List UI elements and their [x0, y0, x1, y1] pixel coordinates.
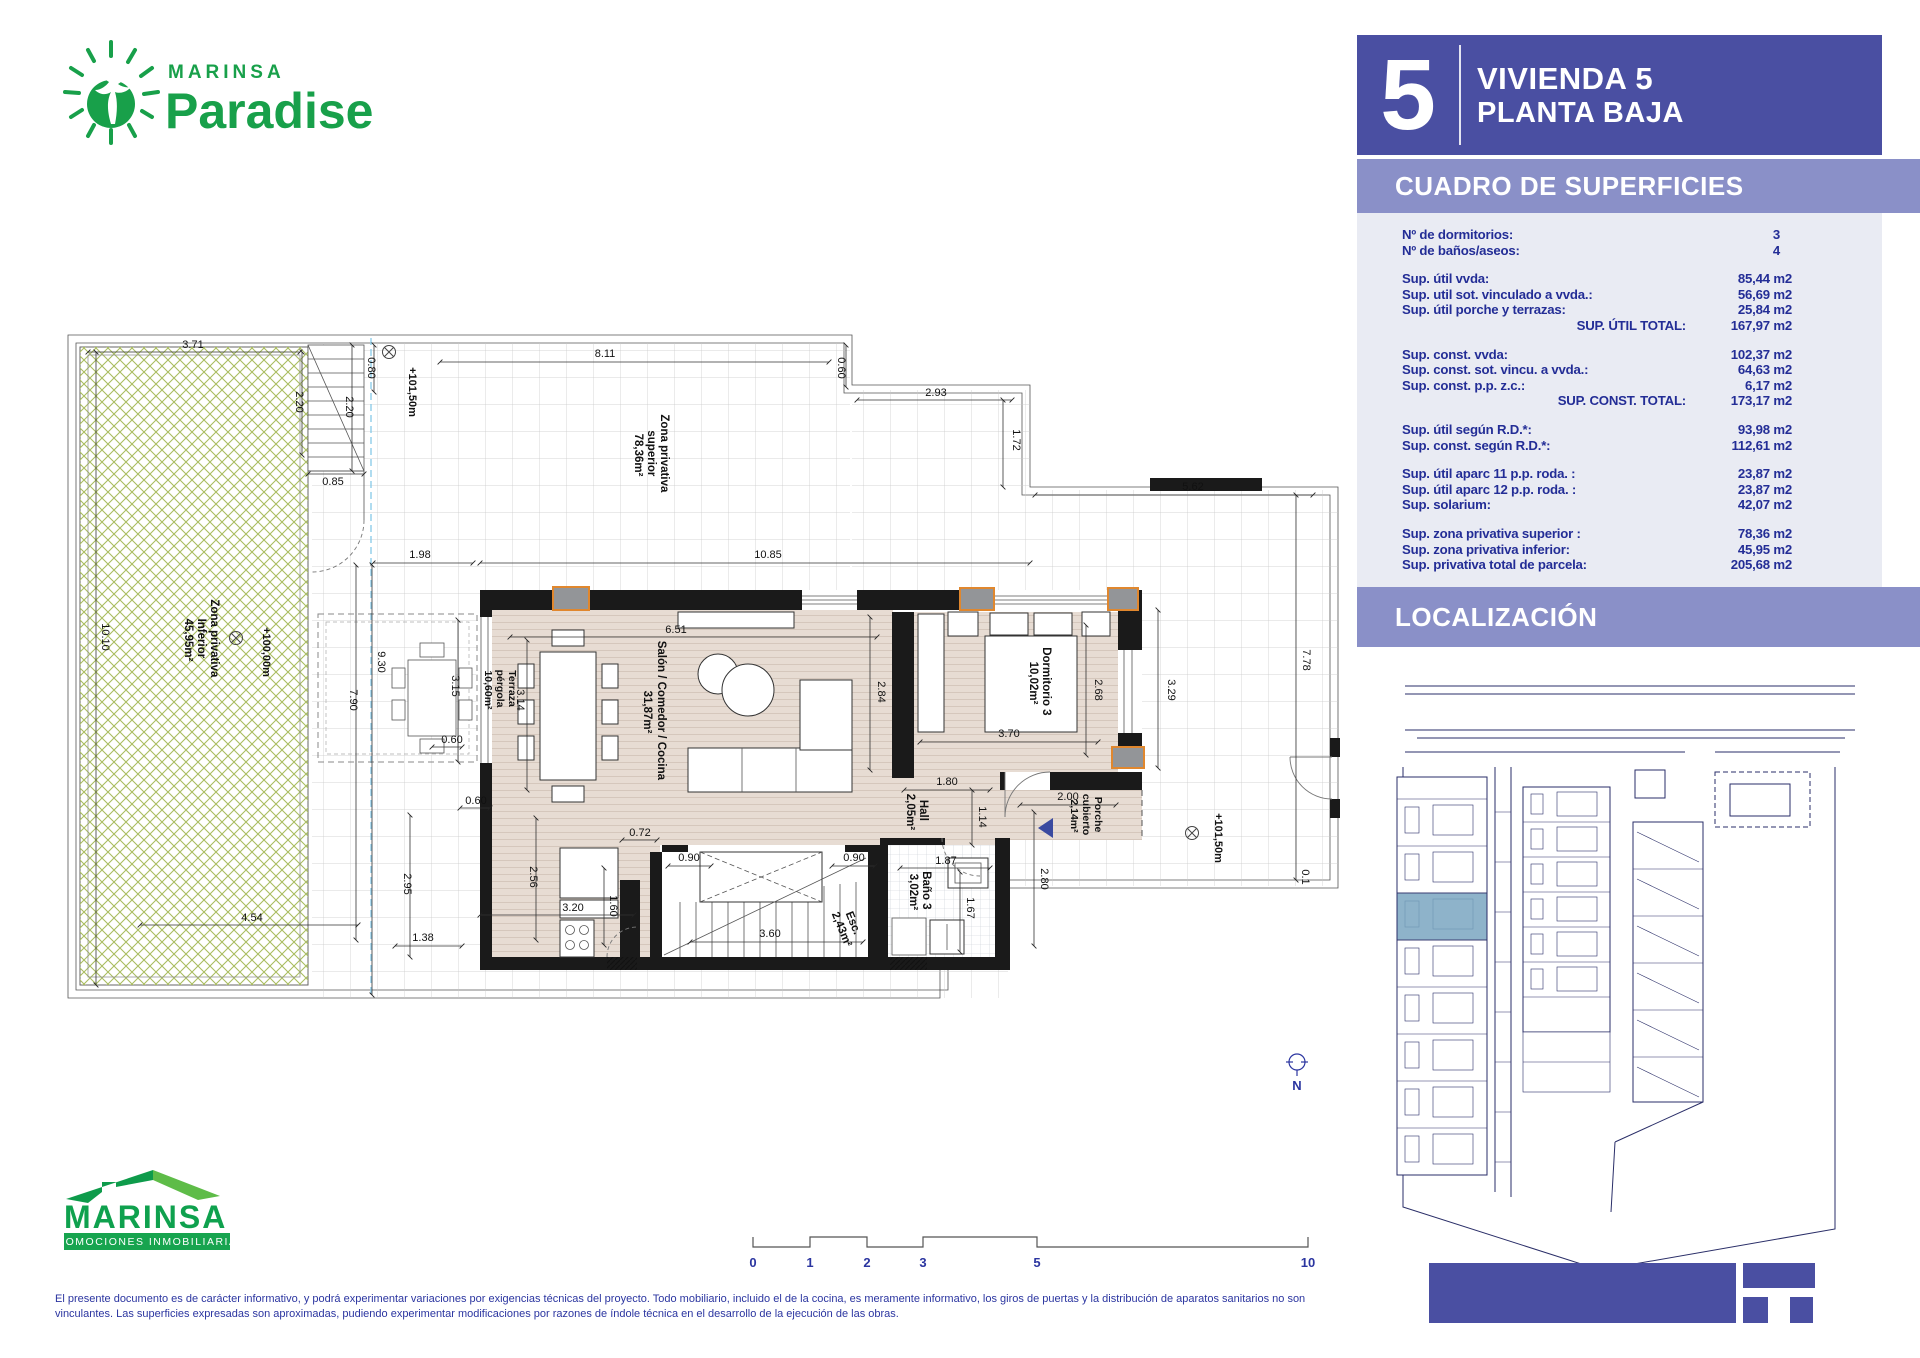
footer-tagline-text: PROMOCIONES INMOBILIARIAS [58, 1236, 246, 1248]
disclaimer-text: El presente documento es de carácter inf… [55, 1292, 1323, 1321]
svg-text:1.80: 1.80 [936, 776, 957, 788]
svg-text:3.20: 3.20 [562, 902, 583, 914]
table-row: Sup. zona privativa superior :78,36 m2 [1402, 526, 1792, 542]
svg-text:+100,00m: +100,00m [260, 627, 272, 677]
marinsa-footer-logo: MARINSA PROMOCIONES INMOBILIARIAS [58, 1166, 258, 1263]
highlighted-unit [1397, 893, 1487, 940]
svg-text:0.60: 0.60 [835, 357, 847, 378]
svg-text:Terraza pérgola: Terraza pérgola 10,60m² [482, 670, 518, 711]
svg-text:1.14: 1.14 [976, 806, 988, 827]
svg-text:0.60: 0.60 [465, 795, 486, 807]
unit-header: 5 VIVIENDA 5 PLANTA BAJA [1357, 35, 1882, 155]
svg-text:7.78: 7.78 [1300, 649, 1312, 670]
table-row: Sup. const. vvda:102,37 m2 [1402, 347, 1792, 363]
svg-text:2.56: 2.56 [527, 866, 539, 887]
svg-text:10.85: 10.85 [754, 549, 782, 561]
svg-text:6.51: 6.51 [665, 624, 686, 636]
map-left-column [1397, 777, 1487, 1175]
surfaces-header: CUADRO DE SUPERFICIES [1357, 159, 1920, 213]
svg-text:3.71: 3.71 [182, 339, 203, 351]
table-row: Sup. útil porche y terrazas:25,84 m2 [1402, 302, 1792, 318]
svg-text:8.11: 8.11 [595, 348, 616, 360]
svg-text:Baño 3 3,02m²: Baño 3 3,02m² [907, 871, 932, 913]
svg-text:0.85: 0.85 [322, 476, 343, 488]
svg-text:0.1: 0.1 [1299, 869, 1311, 884]
svg-text:2.68: 2.68 [1092, 679, 1104, 700]
svg-text:2.20: 2.20 [293, 391, 305, 412]
map-far-right [1611, 770, 1810, 1212]
svg-text:0.90: 0.90 [843, 852, 864, 864]
unit-title: VIVIENDA 5 [1477, 61, 1684, 97]
svg-text:1: 1 [806, 1255, 813, 1270]
brand-text: MARINSA [168, 62, 285, 83]
svg-text:1.98: 1.98 [409, 549, 430, 561]
location-header: LOCALIZACIÓN [1357, 587, 1920, 647]
table-row: Sup. privativa total de parcela:205,68 m… [1402, 557, 1792, 573]
svg-text:9.30: 9.30 [375, 651, 387, 672]
location-map [1385, 672, 1875, 1272]
svg-text:0: 0 [749, 1255, 756, 1270]
svg-text:2.93: 2.93 [925, 387, 946, 399]
surfaces-header-label: CUADRO DE SUPERFICIES [1395, 171, 1744, 202]
table-row: Nº de dormitorios:3 [1402, 227, 1792, 243]
plan-sheet: 3.71 2.20 0.80 2.20 0.85 8.11 0.60 2.93 … [0, 0, 1920, 1358]
svg-text:1.60: 1.60 [607, 895, 619, 916]
svg-text:10: 10 [1301, 1255, 1315, 1270]
product-text: Paradise [165, 83, 373, 139]
garden-zone [80, 347, 308, 985]
svg-text:1.87: 1.87 [935, 855, 956, 867]
scale-bar: 0 1 2 3 5 10 [749, 1237, 1315, 1270]
svg-text:0.90: 0.90 [678, 852, 699, 864]
svg-text:3.15: 3.15 [449, 675, 461, 696]
map-right-column [1523, 787, 1610, 1092]
map-lane [1495, 767, 1511, 1197]
table-row: Nº de baños/aseos:4 [1402, 243, 1792, 259]
footer-logo-block [1743, 1297, 1768, 1323]
svg-text:1.38: 1.38 [412, 932, 433, 944]
svg-text:+101,50m: +101,50m [406, 367, 418, 417]
svg-text:3.70: 3.70 [998, 728, 1019, 740]
footer-band [1429, 1263, 1736, 1323]
svg-text:5: 5 [1033, 1255, 1040, 1270]
svg-text:N: N [1292, 1078, 1301, 1093]
footer-logo-block [1790, 1297, 1813, 1323]
sun-palm-icon [65, 42, 158, 143]
svg-text:5.62: 5.62 [1182, 481, 1203, 493]
unit-number: 5 [1357, 40, 1459, 150]
north-icon: N [1286, 1054, 1308, 1093]
svg-text:3.29: 3.29 [1165, 679, 1177, 700]
svg-text:2.20: 2.20 [343, 396, 355, 417]
footer-brand-text: MARINSA [64, 1199, 227, 1235]
tv-bench [678, 612, 794, 628]
surfaces-table: Nº de dormitorios:3 Nº de baños/aseos:4 … [1357, 213, 1882, 587]
svg-text:1.67: 1.67 [964, 897, 976, 918]
svg-text:0.80: 0.80 [365, 357, 377, 378]
svg-text:2.84: 2.84 [875, 681, 887, 702]
table-total-row: SUP. ÚTIL TOTAL:167,97 m2 [1402, 318, 1792, 334]
table-row: Sup. util sot. vinculado a vvda.:56,69 m… [1402, 287, 1792, 303]
table-row: Sup. zona privativa inferior:45,95 m2 [1402, 542, 1792, 558]
table-row: Sup. const. según R.D.*:112,61 m2 [1402, 438, 1792, 454]
table-row: Sup. útil aparc 12 p.p. roda. :23,87 m2 [1402, 482, 1792, 498]
svg-text:Porche cubierto: Porche cubierto 2,14m² [1068, 794, 1104, 838]
svg-text:10.10: 10.10 [99, 623, 111, 651]
svg-text:7.90: 7.90 [347, 689, 359, 710]
marinsa-paradise-logo: MARINSA Paradise [55, 28, 385, 158]
table-total-row: SUP. CONST. TOTAL:173,17 m2 [1402, 393, 1792, 409]
svg-text:0.60: 0.60 [441, 734, 462, 746]
svg-text:+101,50m: +101,50m [1212, 813, 1224, 863]
table-row: Sup. const. sot. vincu. a vvda.:64,63 m2 [1402, 362, 1792, 378]
table-row: Sup. útil vvda:85,44 m2 [1402, 271, 1792, 287]
table-row: Sup. const. p.p. z.c.:6,17 m2 [1402, 378, 1792, 394]
table-row: Sup. útil aparc 11 p.p. roda. :23,87 m2 [1402, 466, 1792, 482]
table-row: Sup. solarium:42,07 m2 [1402, 497, 1792, 513]
svg-text:2: 2 [863, 1255, 870, 1270]
svg-text:1.72: 1.72 [1010, 429, 1022, 450]
svg-text:2.80: 2.80 [1038, 868, 1050, 889]
table-row: Sup. útil según R.D.*:93,98 m2 [1402, 422, 1792, 438]
footer-logo-block [1743, 1263, 1815, 1288]
svg-text:3.60: 3.60 [759, 928, 780, 940]
svg-text:0.72: 0.72 [629, 827, 650, 839]
floor-title: PLANTA BAJA [1477, 97, 1684, 130]
svg-text:4.54: 4.54 [241, 912, 262, 924]
location-header-label: LOCALIZACIÓN [1395, 602, 1597, 633]
svg-text:3: 3 [919, 1255, 926, 1270]
svg-text:2.95: 2.95 [401, 873, 413, 894]
